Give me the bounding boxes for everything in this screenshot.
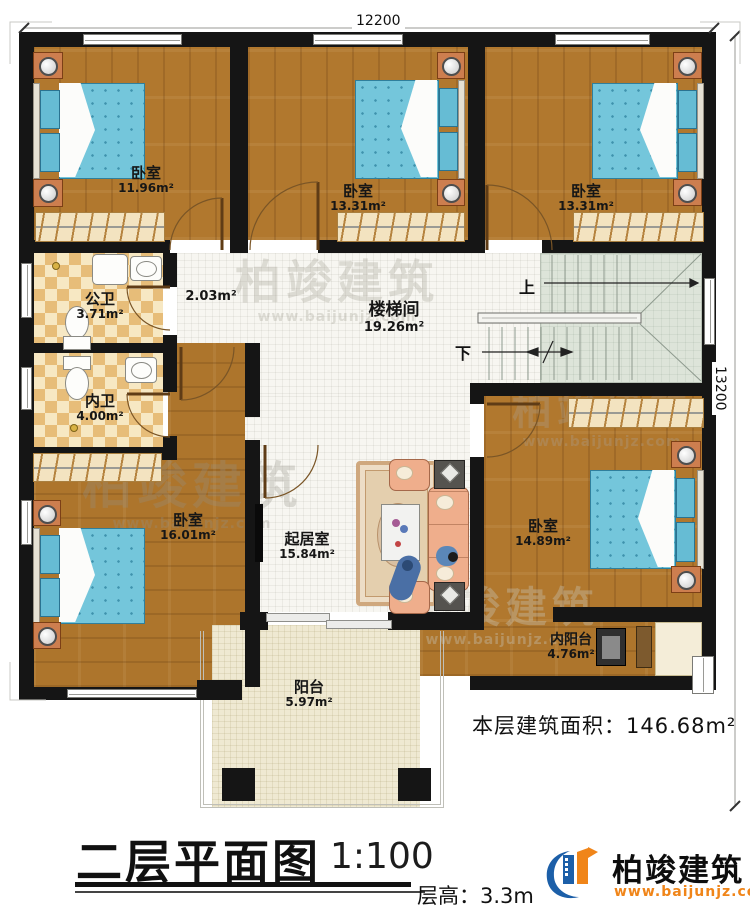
room-label: 2.03m² [185,290,236,305]
bed-headboard [697,83,704,179]
bed [33,83,143,177]
flower-decor-icon [392,519,400,527]
appliance-icon [636,626,652,668]
bed [355,80,463,177]
balcony-pillar [222,768,255,801]
bed-headboard [33,528,40,624]
company-logo-url: www.baijunjz.com [614,884,750,900]
bed [33,528,143,622]
floor-area-note: 本层建筑面积：146.68m² [472,710,736,740]
window [21,367,32,410]
person-head [402,560,413,571]
wall-segment [19,343,177,353]
window [21,500,32,545]
bed-headboard [33,83,40,179]
window [704,278,715,345]
person-head [448,552,458,562]
title-underline [75,882,411,887]
room-label: 起居室 15.84m² [279,531,335,562]
room-label: 卧室 13.31m² [558,183,614,214]
window [555,34,650,45]
wardrobe [568,398,704,428]
stairs-area [540,253,702,383]
wall-segment [388,612,484,630]
room-name: 公卫 [76,291,123,308]
side-table-lamp-icon [434,460,465,489]
room-label: 卧室 13.31m² [330,183,386,214]
company-logo-icon [540,843,606,903]
wardrobe [33,453,162,482]
wall-segment [468,32,485,253]
throw-pillow [436,495,454,510]
wall-segment [470,396,484,404]
room-name: 卧室 [558,183,614,200]
room-area: 3.71m² [76,308,123,322]
room-name: 内卫 [76,393,123,410]
window [313,34,403,45]
bed-pillow [40,535,60,574]
sink-basin [131,362,152,379]
coffee-table [381,504,420,561]
wardrobe [337,212,465,242]
room-label: 卧室 14.89m² [515,518,571,549]
room-area: 19.26m² [364,321,424,336]
wall-segment [470,457,484,612]
wardrobe [35,212,165,242]
window [21,263,32,318]
room-label: 内阳台 4.76m² [547,632,594,662]
nightstand-lamp-icon [673,52,702,79]
flower-decor-icon [400,525,408,533]
sink-icon [130,256,162,281]
appliance-panel [602,636,620,659]
throw-pillow [436,566,454,581]
room-label: 阳台 5.97m² [285,679,332,710]
floor-drain-icon [52,262,60,270]
appliance-icon [596,628,626,666]
room-label: 公卫 3.71m² [76,291,123,322]
sink-icon [125,357,157,383]
side-table-lamp-icon [434,582,465,611]
wall-segment [240,612,268,630]
bed-pillow [40,578,60,617]
bed-pillow [678,90,697,129]
floor-height-label: 层高：3.3m [417,880,534,907]
room-label: 卧室 16.01m² [160,512,216,543]
wall-segment [245,440,260,687]
wall-segment [197,680,242,700]
bed-headboard [458,80,465,179]
wall-segment [230,32,248,253]
room-name: 卧室 [160,512,216,529]
stairs-up-label: 上 [519,274,535,298]
room-name: 阳台 [285,679,332,696]
room-name: 卧室 [118,165,174,182]
armchair [389,459,430,491]
sofa [428,487,469,591]
wall-segment [702,32,716,690]
bed-pillow [439,88,458,127]
floor-plan: 柏竣建筑 www.baijunjz.com 柏竣建筑 www.baijunjz.… [0,0,750,907]
wall-segment [163,253,177,287]
floor-drain-icon [70,424,78,432]
throw-pillow [396,466,413,480]
wall-segment [470,676,702,690]
bed-pillow [678,133,697,172]
room-area: 4.76m² [547,648,594,662]
room-label: 内卫 4.00m² [76,393,123,424]
room-area: 15.84m² [279,548,335,562]
bed-pillow [676,522,695,562]
sliding-door-panel [326,620,392,629]
nightstand-lamp-icon [33,500,61,526]
room-area: 13.31m² [330,200,386,214]
bed-headboard [697,470,704,569]
room-area: 2.03m² [185,290,236,305]
nightstand-lamp-icon [437,179,465,206]
scale-label: 1:100 [330,836,434,877]
sink-basin [136,261,157,277]
flower-decor-icon [395,541,401,547]
room-name: 楼梯间 [364,301,424,321]
nightstand-lamp-icon [33,622,61,649]
room-area: 4.00m² [76,410,123,424]
balcony-pillar [398,768,431,801]
bed-pillow [676,478,695,518]
room-name: 卧室 [330,183,386,200]
stairs-down-label: 下 [455,340,471,364]
room-area: 5.97m² [285,696,332,710]
wall-segment [553,607,702,622]
wall-segment [470,383,702,396]
nightstand-lamp-icon [33,179,63,207]
room-area: 13.31m² [558,200,614,214]
bed-pillow [439,132,458,171]
wardrobe [573,212,704,242]
room-area: 14.89m² [515,535,571,549]
bed-pillow [40,133,60,172]
window [692,656,714,694]
room-area: 11.96m² [118,182,174,196]
hallway [168,343,245,460]
room-name: 卧室 [515,518,571,535]
window [67,689,197,698]
wall-segment [245,343,260,417]
title-underline-thin [75,891,425,893]
washing-machine-icon [92,254,128,285]
sliding-door-panel [266,613,330,622]
nightstand-lamp-icon [671,566,701,593]
bed-pillow [40,90,60,129]
nightstand-lamp-icon [673,179,702,206]
dimension-top: 12200 [352,13,405,29]
bed [590,470,702,567]
room-name: 起居室 [279,531,335,548]
window [83,34,182,45]
toilet-tank [63,336,91,350]
room-name: 内阳台 [547,632,594,648]
room-label: 楼梯间 19.26m² [364,301,424,335]
nightstand-lamp-icon [33,52,63,79]
nightstand-lamp-icon [671,441,701,468]
dimension-right: 13200 [712,362,728,415]
wall-segment [19,32,34,700]
tv-icon [255,504,263,562]
room-label: 卧室 11.96m² [118,165,174,196]
bed [592,83,702,177]
nightstand-lamp-icon [437,52,465,79]
room-area: 16.01m² [160,529,216,543]
